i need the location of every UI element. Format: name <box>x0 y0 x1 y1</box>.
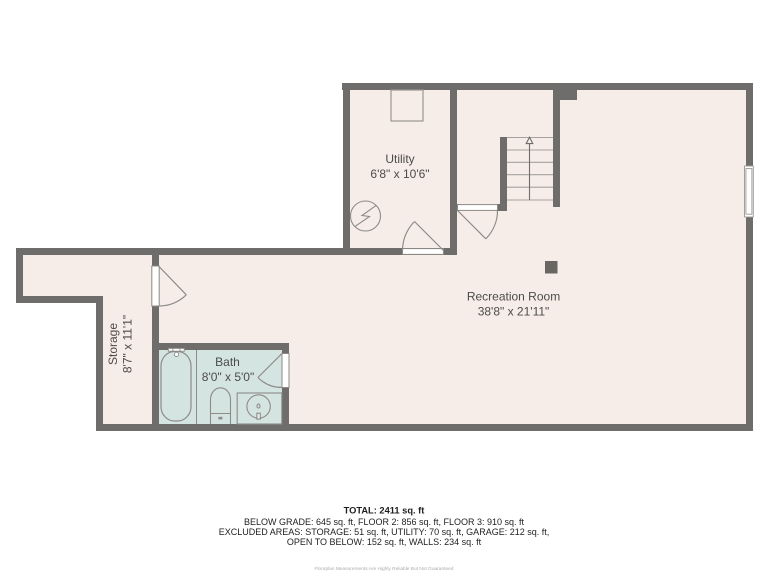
svg-text:Bath: Bath <box>215 355 240 369</box>
svg-text:EXCLUDED AREAS: STORAGE: 51 sq: EXCLUDED AREAS: STORAGE: 51 sq. ft, UTIL… <box>219 527 549 537</box>
svg-text:8'7" x 11'1": 8'7" x 11'1" <box>121 315 135 373</box>
svg-text:Storage: Storage <box>106 323 120 365</box>
svg-text:8'0" x 5'0": 8'0" x 5'0" <box>202 370 254 384</box>
svg-text:OPEN TO BELOW: 152 sq. ft, WAL: OPEN TO BELOW: 152 sq. ft, WALLS: 234 sq… <box>287 537 482 547</box>
svg-text:BELOW GRADE: 645 sq. ft, FLOOR: BELOW GRADE: 645 sq. ft, FLOOR 2: 856 sq… <box>244 517 525 527</box>
svg-text:38'8" x 21'11": 38'8" x 21'11" <box>478 305 550 319</box>
svg-text:6'8" x 10'6": 6'8" x 10'6" <box>370 167 429 181</box>
svg-text:Utility: Utility <box>385 152 414 166</box>
svg-text:Floorplan Measurements Are Hig: Floorplan Measurements Are Highly Reliab… <box>315 566 454 572</box>
svg-text:TOTAL: 2411 sq. ft: TOTAL: 2411 sq. ft <box>344 506 425 516</box>
svg-text:Recreation Room: Recreation Room <box>467 290 560 304</box>
